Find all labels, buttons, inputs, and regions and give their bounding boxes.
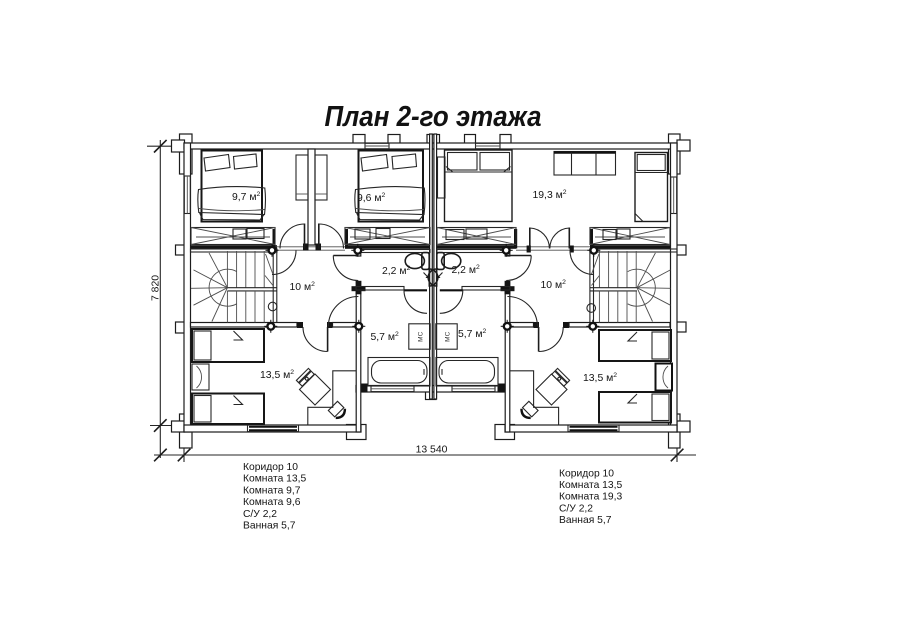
svg-text:С/У 2,2: С/У 2,2 <box>243 509 277 520</box>
svg-text:13,5 м2: 13,5 м2 <box>583 372 617 384</box>
svg-text:5,7 м2: 5,7 м2 <box>371 331 399 343</box>
svg-text:С/У 2,2: С/У 2,2 <box>559 503 593 514</box>
svg-text:7 820: 7 820 <box>151 275 162 301</box>
svg-text:19,3 м2: 19,3 м2 <box>533 189 567 201</box>
svg-text:Комната 19,3: Комната 19,3 <box>559 492 622 503</box>
svg-text:2,2 м2: 2,2 м2 <box>382 265 410 277</box>
svg-text:Ванная 5,7: Ванная 5,7 <box>243 521 296 532</box>
svg-text:МС: МС <box>418 331 425 341</box>
svg-text:9,6 м2: 9,6 м2 <box>357 192 385 204</box>
svg-text:13,5 м2: 13,5 м2 <box>260 369 294 381</box>
svg-text:Коридор 10: Коридор 10 <box>559 468 614 479</box>
svg-text:МС: МС <box>445 331 452 341</box>
svg-text:Ванная 5,7: Ванная 5,7 <box>559 515 612 526</box>
svg-text:Комната 13,5: Комната 13,5 <box>559 480 622 491</box>
svg-text:Комната 9,6: Комната 9,6 <box>243 497 301 508</box>
svg-text:13 540: 13 540 <box>416 445 448 456</box>
svg-text:10 м2: 10 м2 <box>290 281 316 293</box>
svg-text:План 2-го этажа: План 2-го этажа <box>325 101 542 133</box>
svg-text:Коридор 10: Коридор 10 <box>243 462 298 473</box>
svg-text:10 м2: 10 м2 <box>541 279 567 291</box>
svg-text:Комната 13,5: Комната 13,5 <box>243 474 306 485</box>
svg-text:2,2 м2: 2,2 м2 <box>452 264 480 276</box>
svg-text:9,7 м2: 9,7 м2 <box>232 191 260 203</box>
svg-text:5,7 м2: 5,7 м2 <box>458 328 486 340</box>
svg-text:Комната 9,7: Комната 9,7 <box>243 485 301 496</box>
